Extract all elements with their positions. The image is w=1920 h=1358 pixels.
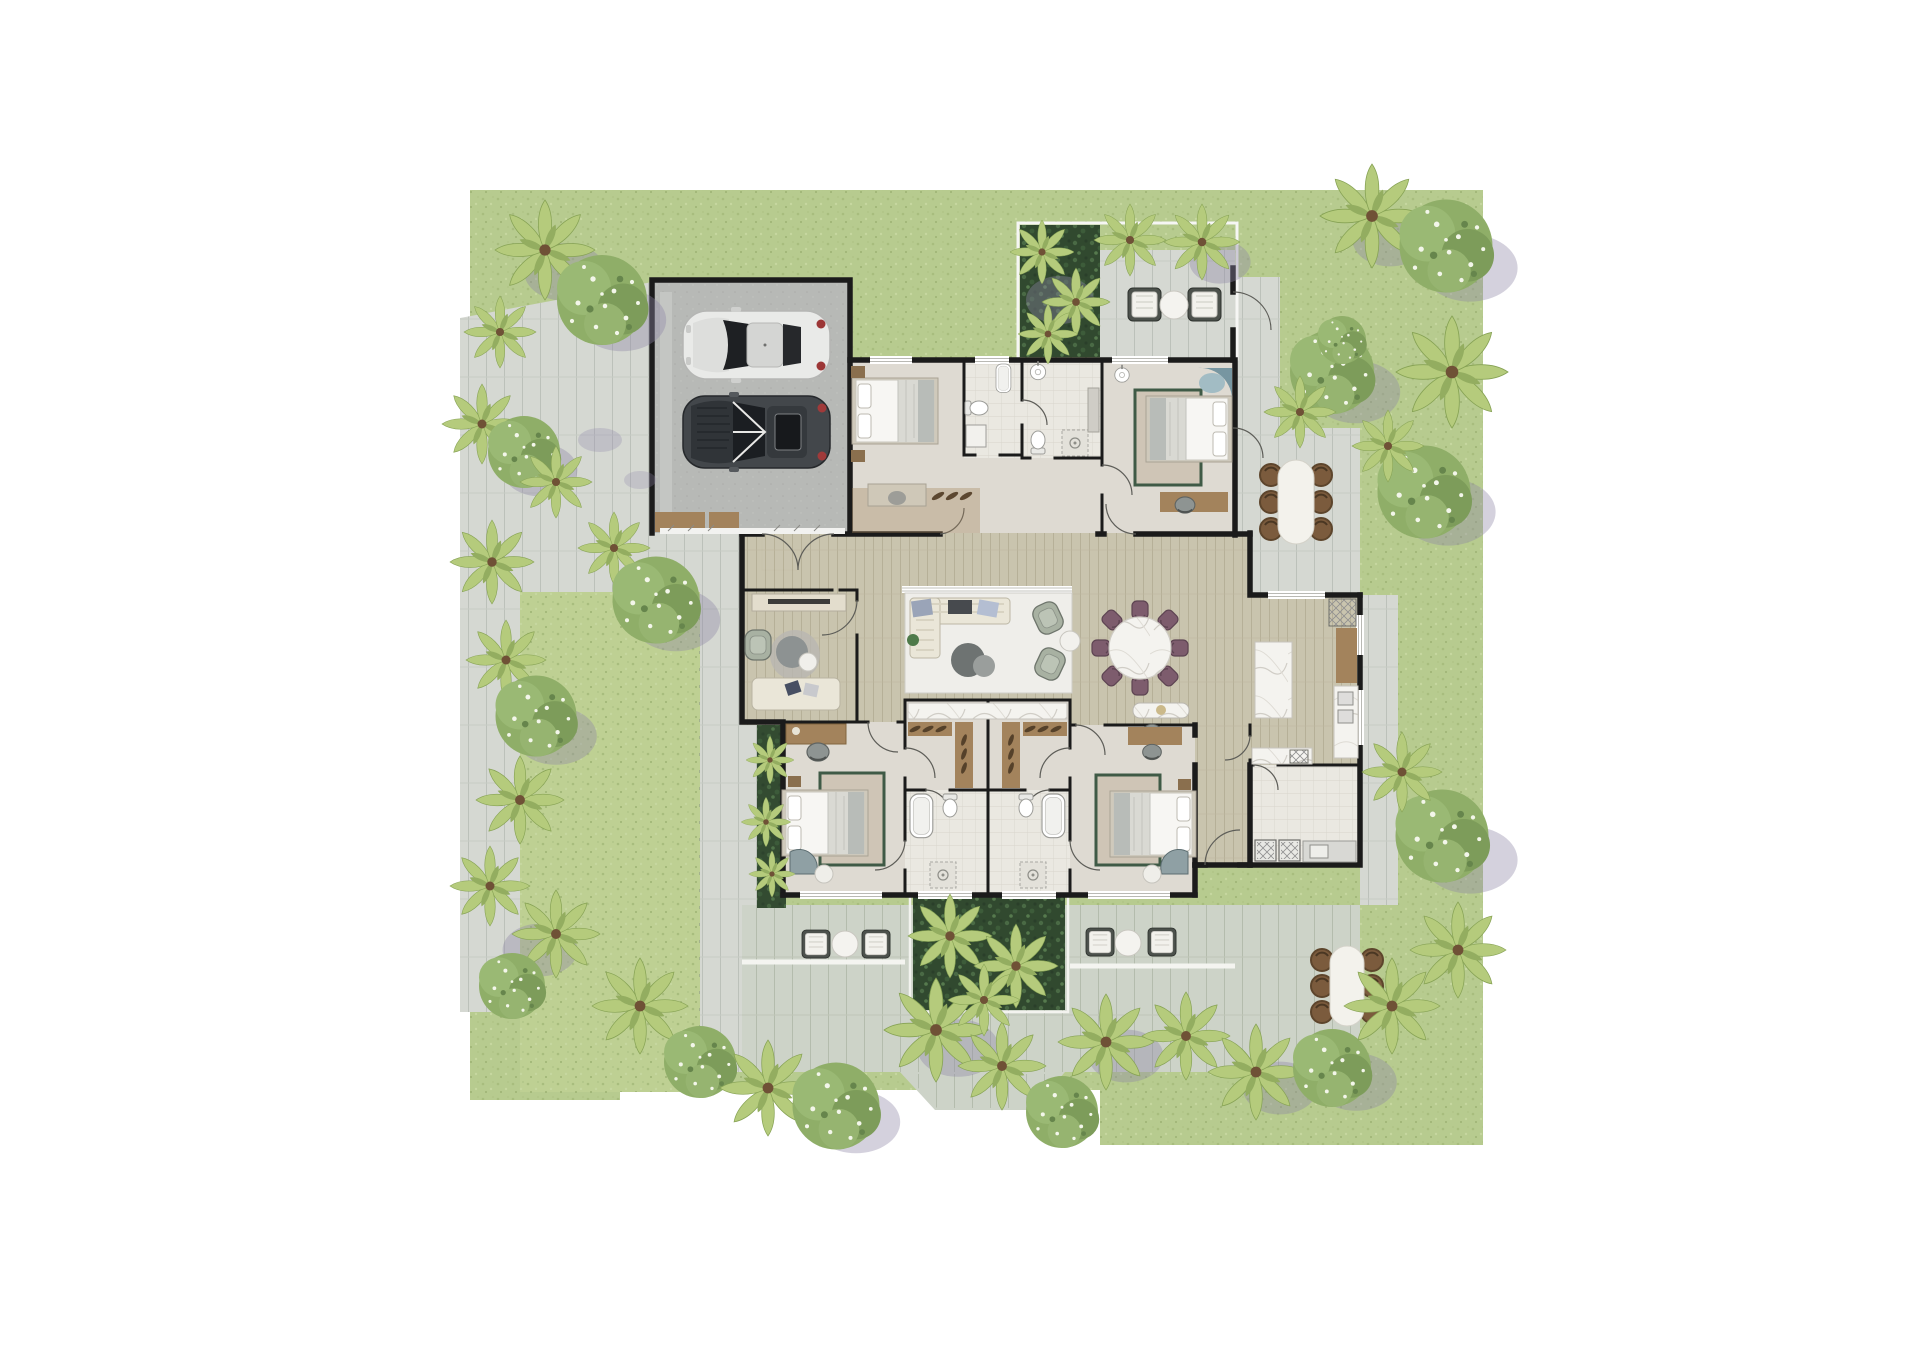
bowl	[1156, 705, 1166, 715]
outdoor-dining-north	[1260, 460, 1332, 544]
sink	[1338, 692, 1353, 705]
dining-set	[1092, 601, 1188, 695]
laundry-sink	[1310, 845, 1328, 858]
side-table	[815, 865, 833, 883]
pantry-unit	[1329, 599, 1356, 626]
tall-cabinet	[1336, 628, 1357, 683]
sw-patio-set	[802, 930, 890, 958]
oval-table	[1278, 460, 1314, 544]
oval-table	[1330, 946, 1364, 1026]
scullery	[1255, 840, 1356, 862]
ne-patio-set	[1128, 288, 1221, 321]
nightstand	[851, 450, 865, 462]
sink	[1338, 710, 1353, 723]
corner-tub-inner	[1199, 373, 1225, 393]
desk-lamp	[792, 727, 800, 735]
car-white	[683, 307, 830, 383]
nightstand	[788, 776, 801, 787]
patio-table	[1160, 291, 1188, 319]
dining-table	[1109, 617, 1171, 679]
cushion-pattern	[911, 599, 933, 618]
site-plan-canvas	[0, 0, 1920, 1358]
side-lawn-texture	[520, 592, 700, 1092]
closet-island	[908, 703, 1067, 719]
cushion-dark	[948, 600, 972, 614]
side-table	[799, 653, 817, 671]
patio-table	[1115, 930, 1141, 956]
desk-chair	[888, 491, 906, 505]
nightstand	[851, 366, 865, 378]
bedroom3	[782, 773, 884, 883]
dishwasher	[1290, 750, 1308, 763]
side-table-marble	[1060, 631, 1080, 651]
island	[1255, 642, 1292, 718]
floor-plan-svg	[0, 0, 1920, 1358]
tv	[768, 599, 830, 604]
patio-table	[832, 931, 858, 957]
side-table	[1143, 865, 1161, 883]
dresser	[1128, 727, 1182, 745]
plant-pot	[907, 634, 919, 646]
vanity	[966, 425, 986, 447]
bench	[1088, 388, 1099, 432]
se-patio-set	[1086, 928, 1176, 956]
coffee-table-small	[973, 655, 995, 677]
living-room	[905, 593, 1080, 693]
nightstand	[1178, 779, 1191, 790]
car-dark	[683, 392, 830, 472]
